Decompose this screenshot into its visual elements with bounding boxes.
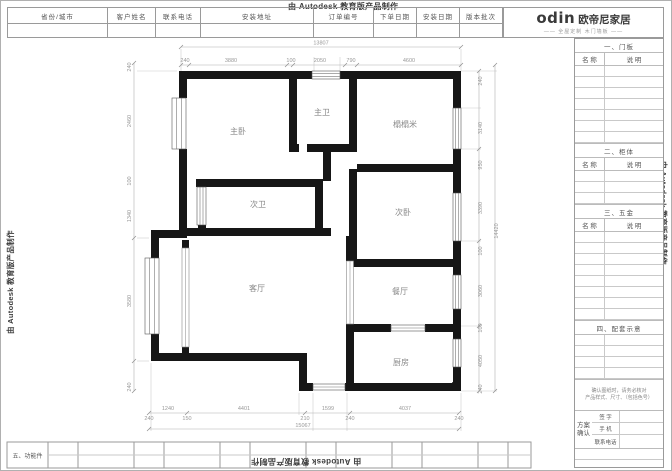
- svg-text:240: 240: [144, 416, 153, 422]
- confirm-label-line2: 确认: [577, 430, 590, 438]
- confirmation-note: 确认图纸时，请务必核对 产品样式、尺寸、（包括色号）: [575, 380, 663, 411]
- autodesk-watermark-left: 由 Autodesk 教育版产品制作: [5, 230, 16, 334]
- header-value-empty: [108, 24, 155, 37]
- header-value-empty: [374, 24, 416, 37]
- col-desc: 说 明: [605, 159, 663, 169]
- svg-text:100: 100: [286, 58, 295, 64]
- dimension-lines: [134, 47, 495, 429]
- empty-rows-accessories: [575, 335, 663, 380]
- dim-top-total: 13807: [313, 41, 328, 47]
- svg-text:3060: 3060: [478, 285, 484, 297]
- header-cell-customer-name: 客户姓名: [108, 8, 156, 37]
- svg-text:4037: 4037: [399, 406, 411, 412]
- header-cell-phone: 联系电话: [156, 8, 201, 37]
- room-label-kitchen: 厨房: [393, 357, 409, 367]
- col-desc: 说 明: [605, 54, 663, 64]
- header-label: 下单日期: [374, 8, 416, 24]
- svg-text:4600: 4600: [403, 58, 415, 64]
- svg-text:240: 240: [180, 58, 189, 64]
- svg-text:790: 790: [346, 58, 355, 64]
- extension-lines: [137, 49, 497, 431]
- svg-text:2460: 2460: [127, 115, 133, 127]
- col-name: 名 称: [575, 158, 605, 170]
- mobile-field[interactable]: [620, 423, 663, 434]
- header-label: 客户姓名: [108, 8, 155, 24]
- svg-text:1340: 1340: [127, 210, 133, 222]
- svg-text:100: 100: [478, 323, 484, 332]
- note-line-1: 确认图纸时，请务必核对: [591, 388, 646, 395]
- col-desc: 说 明: [605, 220, 663, 230]
- room-label-tatami: 榻榻米: [393, 119, 417, 129]
- contact-phone-label: 联系电话: [592, 435, 620, 448]
- svg-text:240: 240: [478, 76, 484, 85]
- header-label: 安装日期: [417, 8, 459, 24]
- header-value-empty: [314, 24, 373, 37]
- svg-text:1599: 1599: [322, 406, 334, 412]
- section-columns: 名 称 说 明: [575, 219, 663, 232]
- header-label: 订单编号: [314, 8, 373, 24]
- header-value-empty: [8, 24, 107, 37]
- section-title-accessories: 四、配套示意: [575, 321, 663, 335]
- plan-walls: [151, 71, 461, 391]
- svg-text:3140: 3140: [478, 122, 484, 134]
- order-spec-sidebar: 一、门板 名 称 说 明 二、柜体 名 称 说 明 三、五金 名 称 说 明 四…: [574, 38, 664, 468]
- header-label: 联系电话: [156, 8, 200, 24]
- svg-text:210: 210: [300, 416, 309, 422]
- room-label-master-bath: 主卫: [314, 107, 330, 117]
- room-label-master-bedroom: 主卧: [230, 126, 246, 136]
- empty-rows-door-panels: [575, 66, 663, 144]
- svg-text:240: 240: [127, 62, 133, 71]
- header-value-empty: [417, 24, 459, 37]
- confirm-label-line1: 方案: [577, 422, 590, 430]
- contact-phone-field[interactable]: [620, 435, 663, 448]
- section-title-functional-parts: 五、功能件: [7, 442, 48, 468]
- header-cell-order-no: 订单编号: [314, 8, 374, 37]
- section-title-door-panels: 一、门板: [575, 39, 663, 53]
- svg-text:1240: 1240: [162, 406, 174, 412]
- svg-text:2050: 2050: [314, 58, 326, 64]
- dim-bottom-total: 15067: [295, 423, 310, 429]
- svg-text:3880: 3880: [225, 58, 237, 64]
- plan-confirmation-label: 方案 确认: [575, 411, 592, 448]
- header-cell-address: 安装地址: [201, 8, 314, 37]
- header-cell-order-date: 下单日期: [374, 8, 417, 37]
- header-value-empty: [156, 24, 200, 37]
- col-name: 名 称: [575, 53, 605, 65]
- header-info-table: 省份/城市 客户姓名 联系电话 安装地址 订单编号 下单日期 安装日期 版本批次: [7, 7, 503, 38]
- empty-rows-cabinets: [575, 171, 663, 205]
- header-value-empty: [201, 24, 313, 37]
- section-columns: 名 称 说 明: [575, 53, 663, 66]
- header-label: 省份/城市: [8, 8, 107, 24]
- autodesk-watermark-bottom: 由 Autodesk 教育版产品制作: [251, 456, 361, 467]
- floor-plan-canvas: 主卧 主卫 榻榻米 次卫 次卧 客厅 餐厅 厨房 13807 240 3880 …: [1, 1, 672, 471]
- svg-text:240: 240: [454, 416, 463, 422]
- room-label-living-room: 客厅: [249, 283, 265, 293]
- section-title-hardware: 三、五金: [575, 205, 663, 219]
- svg-text:3390: 3390: [478, 202, 484, 214]
- svg-text:950: 950: [478, 160, 484, 169]
- brand-logo-tagline: —— 全屋定制 木门墙板 ——: [544, 28, 623, 35]
- svg-text:4401: 4401: [238, 406, 250, 412]
- brand-logo-cn-name: 欧帝尼家居: [578, 12, 631, 27]
- room-label-second-bath: 次卫: [250, 199, 266, 209]
- col-name: 名 称: [575, 219, 605, 231]
- room-label-second-bedroom: 次卧: [395, 207, 411, 217]
- svg-text:240: 240: [478, 384, 484, 393]
- header-cell-install-date: 安装日期: [417, 8, 460, 37]
- signature-field[interactable]: [620, 411, 663, 422]
- room-label-dining-room: 餐厅: [392, 287, 408, 296]
- svg-text:3580: 3580: [127, 295, 133, 307]
- cad-drawing-sheet: 主卧 主卫 榻榻米 次卫 次卧 客厅 餐厅 厨房 13807 240 3880 …: [0, 0, 672, 471]
- note-line-2: 产品样式、尺寸、（包括色号）: [585, 395, 653, 402]
- svg-text:240: 240: [127, 382, 133, 391]
- contact-phone-row: 联系电话: [592, 435, 663, 448]
- header-value-empty: [460, 24, 502, 37]
- svg-text:240: 240: [345, 416, 354, 422]
- header-label: 版本批次: [460, 8, 502, 24]
- brand-logo-cell: odin 欧帝尼家居 —— 全屋定制 木门墙板 ——: [503, 7, 664, 38]
- header-label: 安装地址: [201, 8, 313, 24]
- svg-text:100: 100: [478, 246, 484, 255]
- section-title-cabinets: 二、柜体: [575, 144, 663, 158]
- mobile-row: 手 机: [592, 423, 663, 435]
- empty-rows-footer: [575, 449, 663, 471]
- plan-confirmation-block: 方案 确认 签 字 手 机 联系电话: [575, 411, 663, 449]
- svg-text:150: 150: [182, 416, 191, 422]
- signature-row: 签 字: [592, 411, 663, 423]
- signature-label: 签 字: [592, 411, 620, 422]
- header-cell-province-city: 省份/城市: [8, 8, 108, 37]
- empty-rows-hardware: [575, 232, 663, 321]
- svg-text:100: 100: [127, 176, 133, 185]
- brand-logo-wordmark: odin: [536, 11, 575, 25]
- dim-right-total: 14420: [494, 223, 500, 238]
- section-columns: 名 称 说 明: [575, 158, 663, 171]
- header-cell-version-batch: 版本批次: [460, 8, 502, 37]
- svg-text:4050: 4050: [478, 355, 484, 367]
- mobile-label: 手 机: [592, 423, 620, 434]
